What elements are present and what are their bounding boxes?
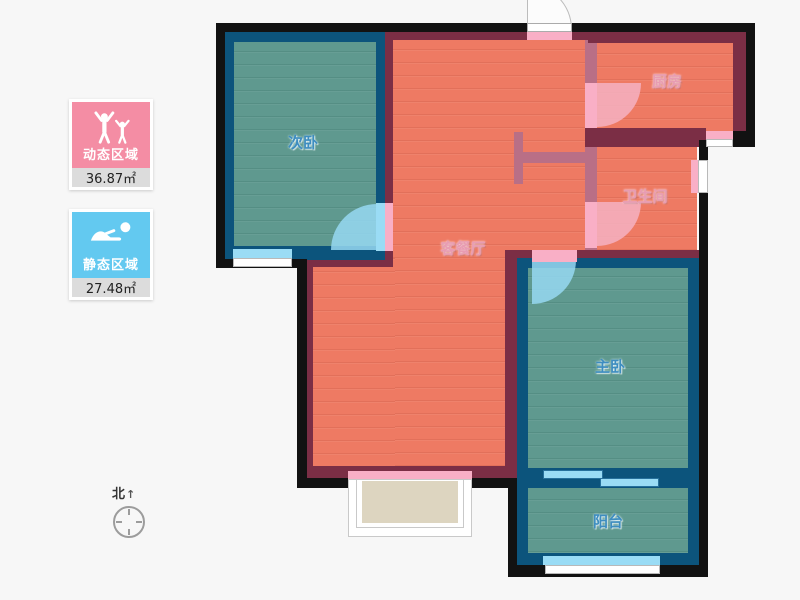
wall-segment xyxy=(733,38,746,133)
window-balcony xyxy=(543,556,660,565)
window-secondary-bedroom xyxy=(233,249,292,258)
sleeping-person-icon xyxy=(88,218,134,248)
compass-icon xyxy=(113,506,145,538)
door-secondary-bedroom xyxy=(376,203,385,251)
wall-segment xyxy=(508,478,517,577)
sliding-door-balcony xyxy=(600,478,659,487)
wall-segment xyxy=(733,131,755,147)
wall-segment xyxy=(572,23,755,32)
wall-segment xyxy=(699,140,708,577)
window-balcony xyxy=(545,565,660,574)
window-bathroom xyxy=(691,160,698,193)
wall-segment xyxy=(297,259,307,488)
door-secondary-bedroom xyxy=(385,203,393,251)
wall-segment xyxy=(517,258,528,480)
legend-dynamic-label: 动态区域 xyxy=(83,144,139,163)
floor-plan-page: 次卧 厨房 卫生间 客餐厅 主卧 阳台 动态区域 36.87㎡ xyxy=(0,0,800,600)
wall-segment xyxy=(297,478,351,488)
legend-dynamic-color: 动态区域 xyxy=(72,102,150,168)
north-arrow-icon: ↑ xyxy=(126,488,135,501)
legend-static-color: 静态区域 xyxy=(72,212,150,278)
door-master-bedroom xyxy=(532,250,577,262)
bay-window xyxy=(362,481,458,523)
wall-segment xyxy=(746,23,755,147)
room-label-secondary-bedroom: 次卧 xyxy=(288,132,318,153)
wall-segment xyxy=(216,23,527,32)
people-cheering-icon xyxy=(90,111,132,145)
door-bathroom xyxy=(585,202,597,248)
room-label-master-bedroom: 主卧 xyxy=(595,356,625,377)
wall-segment xyxy=(505,250,517,480)
wall-segment xyxy=(588,31,746,43)
room-living-dining xyxy=(310,258,395,472)
legend-static-zone: 静态区域 27.48㎡ xyxy=(69,209,153,300)
legend-dynamic-area: 36.87㎡ xyxy=(72,168,150,187)
legend-static-area: 27.48㎡ xyxy=(72,278,150,297)
bay-window xyxy=(348,471,472,479)
wall-segment xyxy=(216,23,225,268)
entrance-door xyxy=(527,23,572,32)
room-label-bathroom: 卫生间 xyxy=(622,186,667,207)
sliding-door-balcony xyxy=(543,470,603,479)
wall-segment xyxy=(585,128,706,147)
legend-static-label: 静态区域 xyxy=(83,254,139,273)
window-secondary-bedroom xyxy=(233,258,292,267)
door-kitchen xyxy=(585,83,597,128)
room-label-kitchen: 厨房 xyxy=(652,71,682,92)
room-label-living-dining: 客餐厅 xyxy=(440,238,485,259)
room-label-balcony: 阳台 xyxy=(593,511,623,532)
legend-dynamic-zone: 动态区域 36.87㎡ xyxy=(69,99,153,190)
wall-segment xyxy=(224,31,385,42)
wall-segment xyxy=(224,31,234,260)
wall-segment xyxy=(514,152,588,163)
window-kitchen xyxy=(706,139,733,147)
entrance-door xyxy=(527,32,572,40)
compass-north-label: 北↑ xyxy=(112,483,135,502)
window-bathroom xyxy=(698,160,708,193)
window-kitchen xyxy=(706,131,733,139)
